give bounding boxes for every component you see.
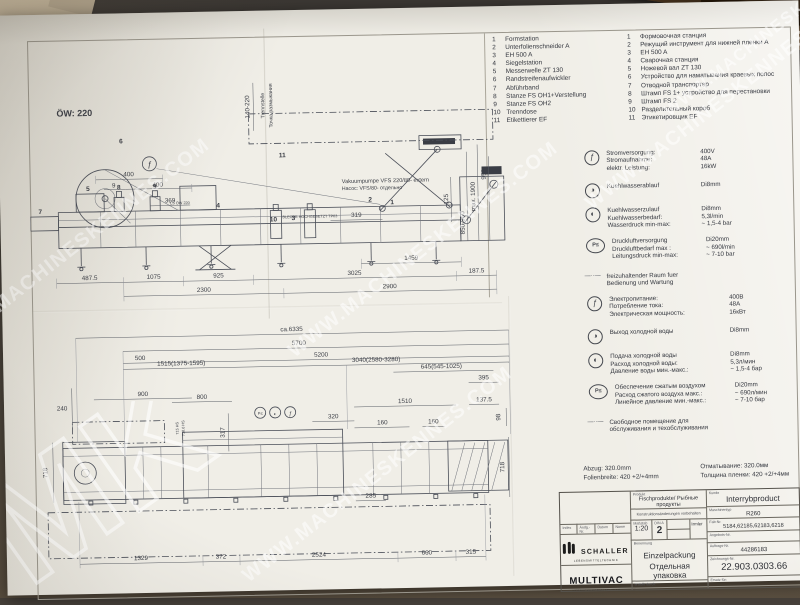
power-connection-glyph: ƒ: [147, 160, 152, 169]
dim: 950: [481, 169, 488, 180]
spec-label: Электрическая мощность:: [609, 309, 729, 319]
tb-zeichnung-value: 22.903.0303.66: [708, 560, 800, 573]
spec-label: Давление воды мин.-макс.:: [610, 366, 730, 376]
dim: 395: [478, 374, 489, 381]
compressed-air-group: P≤ Обеспечение сжатым воздухомDi20mm Рас…: [587, 381, 799, 407]
dim: 372: [216, 553, 227, 560]
dim: 400: [123, 171, 134, 178]
dim: max. 1900: [470, 181, 478, 211]
tb-scale-value: 1:20: [631, 525, 651, 532]
power-spec-group: ƒ Stromversorgung:400V Stromaufnahme:48A…: [582, 146, 794, 172]
callout-3: 3: [292, 215, 296, 222]
compressed-air-icon: P≤: [586, 239, 605, 254]
dim: 1075: [146, 274, 161, 281]
tb-datum-header: Datum: [594, 523, 612, 533]
tb-kunde-cell: Kunde Interrybproduct: [706, 488, 799, 506]
tb-name-header: Name: [612, 523, 630, 533]
callout-2: 2: [368, 197, 372, 204]
dim: 320: [328, 413, 339, 420]
dim: 487.5: [82, 275, 98, 282]
legend-num: 7: [628, 82, 641, 90]
dim: 1459: [404, 255, 419, 262]
schaller-logo: SCHALLER LEBENSMITTELTECHNIK: [561, 533, 632, 565]
tb-label: Benennung: [632, 539, 707, 545]
callout-11: 11: [279, 152, 286, 159]
callout-5: 5: [86, 186, 90, 193]
legend-num: 5: [493, 68, 506, 76]
dim: 2524: [312, 551, 327, 558]
legend-num: 8: [628, 90, 641, 98]
tb-note: Konstruktionsänderungen vorbehalten: [631, 508, 706, 516]
multivac-logo: MULTIVAC VERPACKUNGSMASCHINEN: [561, 564, 631, 591]
compressed-air-group: P≤ DruckluftversorgungDi20mm Druckluftbe…: [584, 235, 796, 261]
dim: 315: [466, 549, 477, 556]
spec-label: Wasserdruck min-max:: [608, 220, 702, 229]
spec-value: ~ 7-10 bar: [706, 250, 796, 259]
water-glyph: ◐: [274, 411, 277, 417]
legend-num: 11: [629, 114, 642, 122]
tb-title-ru: Отдельная упаковка: [632, 561, 707, 580]
machine-side-view: ÖW: 220 Vakuumpumpe VFS 220/80- extern Н…: [27, 56, 512, 315]
legend-label: Этикетировщик EF: [642, 113, 698, 122]
legend-label: Etikettierer EF: [507, 116, 548, 125]
tb-label: Ersatz für:: [708, 575, 800, 582]
cooling-water-inlet-icon: ◐: [585, 207, 600, 222]
spec-value: Di8mm: [701, 180, 795, 189]
dim: 925: [213, 272, 224, 279]
legend-num: 10: [628, 106, 641, 114]
spec-value: 16кВт: [729, 307, 797, 316]
dim: 137.5: [476, 396, 492, 403]
spec-value: ~ 7-10 бар: [735, 396, 799, 405]
dim: 5700: [292, 340, 307, 347]
dim: 900: [137, 391, 148, 398]
multivac-wordmark: MULTIVAC: [569, 575, 623, 587]
folienbreite-de: Folienbreite: 420 +2/+4mm: [583, 472, 658, 482]
dim: 9: [112, 182, 116, 189]
cooling-water-outlet-group: ◑ KuehlwasserablaufDi8mm: [583, 180, 795, 199]
tb-gez-cell: gez. 27.03.03: [666, 519, 689, 529]
separation-point-label-ru: Точка размыкания: [268, 83, 275, 127]
dim: 1329: [134, 555, 149, 562]
legend-label: Unterfolienschneider A: [505, 43, 569, 52]
spec-label: Линейное давление мин.-макс.:: [615, 397, 735, 407]
tb-label: Index: [560, 525, 576, 530]
legend-num: 9: [493, 101, 506, 109]
separation-point-label-de: Trennstelle: [260, 93, 266, 119]
schaller-wordmark: SCHALLER: [581, 548, 629, 556]
cooling-water-outlet-group: ◑ Выход холодной водыDi8mm: [586, 326, 798, 345]
cooling-water-outlet-icon: ◑: [585, 183, 600, 198]
dim: 285: [365, 493, 376, 500]
tb-label: Angebots-Nr.: [708, 530, 800, 537]
legend-num: 1: [627, 33, 640, 41]
dim: 125: [443, 193, 450, 204]
dim: 369: [165, 197, 176, 204]
tb-label: Name: [613, 524, 630, 529]
legend-num: 9: [628, 98, 641, 106]
tb-gepr-cell: gepr.: [666, 529, 689, 539]
pump-label-de: Vakuumpumpe VFS 220/80- extern: [342, 177, 429, 185]
dim: 240: [57, 405, 68, 412]
spec-value: 16kW: [700, 161, 794, 170]
legend-num: 7: [493, 85, 506, 93]
cooling-water-outlet-icon: ◑: [588, 329, 603, 344]
dim: 2900: [383, 283, 398, 290]
tb-label: Datum: [595, 524, 612, 529]
legend-num: 10: [493, 109, 506, 117]
legend-num: 4: [492, 60, 505, 68]
legend-russian: 1Формовочная станция 2Режущий инструмент…: [627, 31, 792, 123]
callout-9: 9: [153, 184, 157, 191]
dim: 800: [197, 394, 208, 401]
film-feed-note-ru: Отматывание: 320.0мм Толщина пленки: 420…: [700, 461, 789, 481]
schaller-bars-icon: [563, 541, 577, 559]
power-glyph: ƒ: [289, 411, 292, 417]
specs-russian: ƒ Электропитание:400В Потребление тока:4…: [585, 292, 800, 434]
spec-label: elektr. Leistung:: [606, 163, 700, 172]
tb-erstellt-cell: erstellt durch:: [631, 579, 707, 589]
callout-10: 10: [270, 216, 278, 223]
pump-label-ru: Насос: VFS/80- отдельно: [342, 185, 403, 192]
tb-label: erstellt durch:: [632, 580, 707, 586]
spec-value: ~ 1,5-4 бар: [730, 364, 798, 373]
dim: 319: [351, 212, 362, 219]
dim: 2300: [197, 287, 212, 294]
tb-din-cell: DIN A 2: [651, 519, 666, 539]
dash-dot-symbol: —··—: [585, 273, 607, 288]
legend-num: 6: [628, 74, 641, 82]
dim: 187.5: [469, 267, 485, 274]
machine-top-view: ca.6335 5700 5200 500 1515(1375-1595) 30…: [31, 322, 521, 581]
legend-num: 8: [493, 93, 506, 101]
spec-value: ~ 1,5-4 bar: [702, 218, 796, 227]
dim: 718: [499, 461, 506, 472]
tb-drawn-name: Irmler: [690, 519, 706, 526]
dim: 660: [422, 549, 433, 556]
legend-num: 6: [493, 76, 506, 84]
tb-din-value: 2: [652, 525, 666, 536]
tb-zeichnung-cell: Zeichnungs-Nr. 22.903.0303.66: [707, 553, 800, 576]
opening-width-label: ÖW: 220: [56, 108, 92, 119]
dash-dot-symbol: —··—: [587, 419, 609, 434]
free-space-line2: Bedienung und Wartung: [607, 279, 679, 288]
legend-num: 5: [628, 66, 641, 74]
multivac-sub: VERPACKUNGSMASCHINEN: [562, 588, 632, 591]
specs-german: ƒ Stromversorgung:400V Stromaufnahme:48A…: [582, 146, 797, 288]
callout-6: 6: [119, 138, 123, 145]
machine-side-linework: [28, 109, 505, 273]
tb-index-header: Index: [560, 524, 576, 534]
tb-produkt-cell: Produkt Fischprodukte/ Рыбные продукты: [630, 490, 706, 508]
tb-ersatz-cell: Ersatz für:: [707, 574, 800, 588]
legend-num: 4: [627, 58, 640, 66]
spec-label: Kuehlwasserablauf: [607, 181, 701, 190]
dim-small: 715 HS: [175, 422, 179, 435]
spec-value: Di8mm: [730, 326, 798, 335]
tb-benennung-cell: Benennung Einzelpackung Отдельная упаков…: [631, 538, 708, 580]
dim: 850-950: [459, 211, 466, 235]
dim: 5200: [314, 351, 329, 358]
tb-drawn-name-cell: Irmler: [689, 518, 706, 538]
legend-num: 2: [627, 41, 640, 49]
callout-8: 8: [117, 184, 121, 191]
film-feed-note-de: Abzug: 320.0mm Folienbreite: 420 +2/+4mm: [583, 463, 659, 482]
legend-german: 1Formstation 2Unterfolienschneider A 3EH…: [492, 34, 626, 126]
legend-num: 3: [492, 52, 505, 60]
callout-4: 4: [216, 202, 220, 209]
cooling-water-inlet-group: ◐ Подача холодной водыDi8mm Расход холод…: [586, 350, 798, 376]
callout-1: 1: [390, 199, 394, 206]
tb-scale-cell: Maßstab 1:20: [630, 519, 651, 539]
dim: 160: [428, 418, 439, 425]
compressed-air-glyph: P≤: [258, 411, 264, 416]
tb-aendg-header: Ändg.-Nr.: [576, 523, 594, 533]
folienbreite-ru: Толщина пленки: 420 +2/+4мм: [700, 470, 789, 481]
dim: 3040(2580-3280): [352, 356, 400, 364]
legend-num: 1: [492, 36, 505, 44]
spec-label: Выход холодной воды: [610, 327, 730, 337]
legend-num: 11: [494, 117, 507, 125]
callout-7: 7: [38, 209, 42, 216]
cooling-water-inlet-group: ◐ KuehlwasserzulaufDi8mm Kuehlwasserbeda…: [583, 204, 795, 230]
power-icon: ƒ: [587, 296, 602, 311]
dim: 160: [377, 419, 388, 426]
drawing-sheet: ÖW: 220 Vakuumpumpe VFS 220/80- extern Н…: [0, 0, 800, 595]
dim: 500: [135, 355, 146, 362]
power-spec-group: ƒ Электропитание:400В Потребление тока:4…: [585, 292, 797, 318]
machine-top-linework: [46, 403, 510, 559]
dim: 98: [495, 413, 502, 421]
dim: 718: [42, 467, 49, 478]
power-icon: ƒ: [584, 150, 599, 165]
dim: 140-220: [244, 95, 251, 119]
tb-kunde-value: Interrybproduct: [707, 493, 799, 504]
dim: ca.6335: [280, 326, 303, 333]
compressed-air-icon: P≤: [589, 385, 608, 400]
legend-num: 2: [492, 44, 505, 52]
legend-num: 3: [627, 50, 640, 58]
dim: 317: [219, 427, 226, 438]
dim: 1510: [398, 398, 413, 405]
tb-title-de: Einzelpackung: [632, 550, 707, 560]
dim-small: 718.6 HS: [181, 420, 185, 436]
dim: 1515(1375-1595): [157, 360, 205, 368]
dim: 645(545-1025): [421, 363, 462, 371]
title-block: Index Ändg.-Nr. Datum Name SCHALLER LEBE…: [559, 487, 800, 592]
cooling-water-inlet-icon: ◐: [588, 353, 603, 368]
spec-label: Leitungsdruck min-max:: [612, 251, 706, 260]
tb-label: Ändg.-Nr.: [577, 524, 594, 533]
dim: 3025: [347, 270, 362, 277]
